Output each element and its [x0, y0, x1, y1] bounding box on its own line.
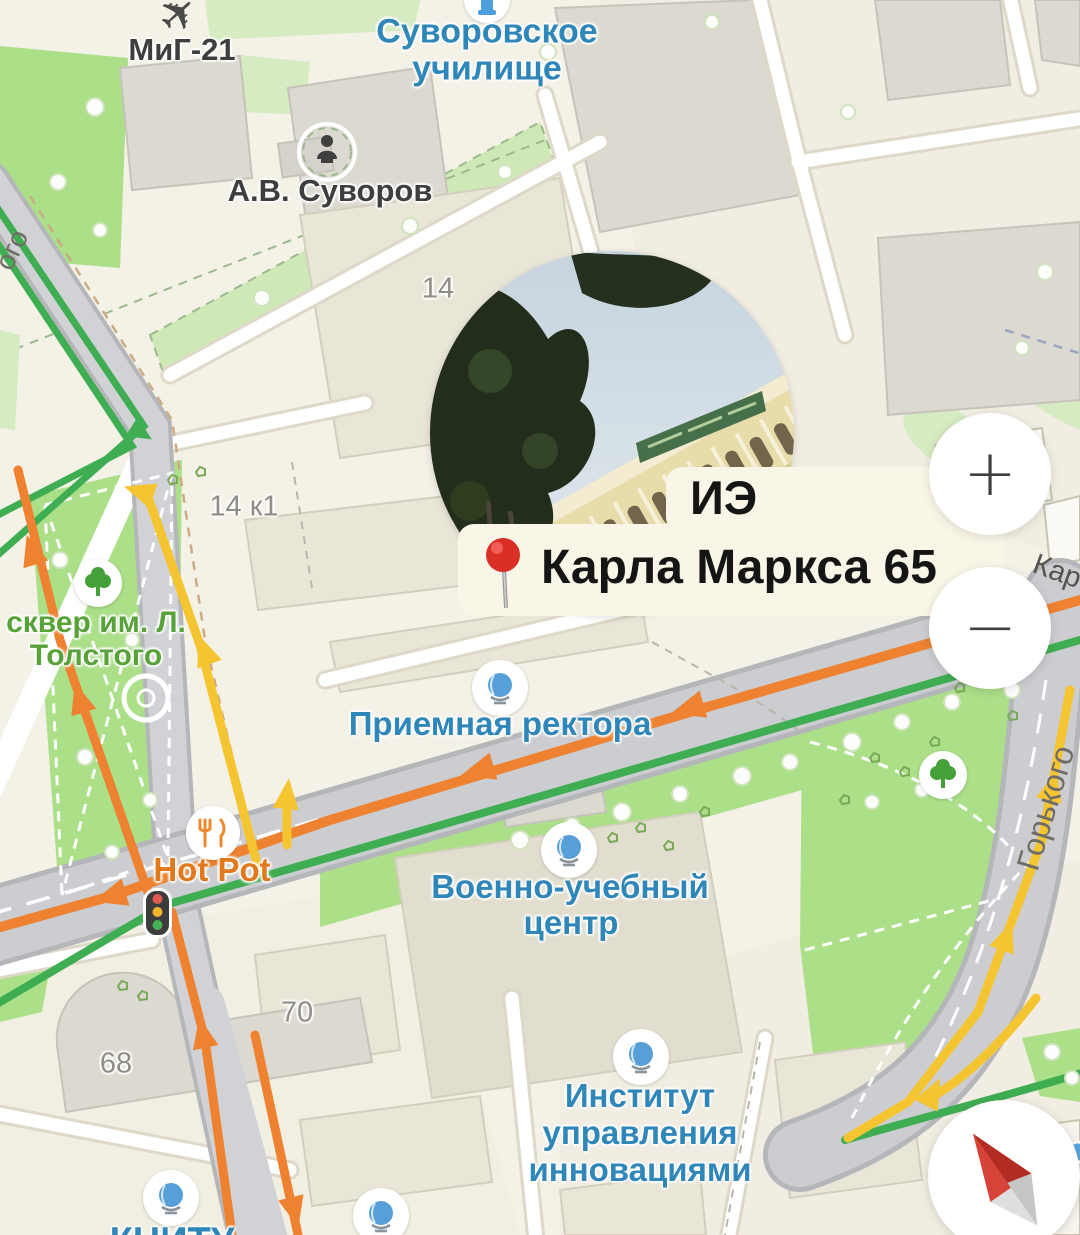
tree-icon[interactable] [919, 751, 967, 799]
minus-icon: − [963, 596, 1017, 660]
place-name[interactable]: ИЭ [690, 470, 757, 525]
plus-icon: + [963, 442, 1017, 506]
zoom-in-button[interactable]: + [929, 413, 1051, 535]
place-address[interactable]: Карла Маркса 65 [541, 540, 937, 595]
building-number-70: 70 [281, 997, 313, 1030]
building-number-68: 68 [100, 1048, 132, 1081]
poi-label-suvorov-school[interactable]: Суворовское [376, 13, 597, 52]
poi-label-institute-2[interactable]: управления [542, 1114, 737, 1152]
poi-label-military-2[interactable]: центр [524, 904, 619, 942]
map-label-suvorov-monument: А.В. Суворов [228, 173, 433, 209]
building-number-14: 14 [422, 273, 454, 306]
map-canvas[interactable]: ✈ МиГ-21 Сувор [0, 0, 1080, 1235]
education-globe-icon[interactable] [353, 1188, 409, 1235]
poi-label-rector[interactable]: Приемная ректора [349, 705, 652, 743]
poi-label-hotpot[interactable]: Hot Pot [153, 851, 270, 889]
compass-needle-icon [928, 1100, 1080, 1235]
monument-icon[interactable] [307, 130, 347, 170]
compass-button[interactable] [928, 1100, 1080, 1235]
poi-label-suvorov-school-2[interactable]: училище [412, 50, 562, 89]
tree-icon[interactable] [74, 559, 122, 607]
traffic-light-icon [143, 888, 172, 938]
poi-label-park-tolstoy[interactable]: сквер им. Л. [6, 606, 186, 640]
poi-label-institute-3[interactable]: инновациями [528, 1151, 751, 1189]
red-pin-icon [482, 534, 526, 617]
map-label-mig21: МиГ-21 [128, 32, 235, 68]
poi-label-park-tolstoy-2[interactable]: Толстого [30, 639, 162, 673]
poi-label-institute[interactable]: Институт [565, 1077, 715, 1115]
poi-label-military[interactable]: Военно-учебный [431, 868, 709, 906]
zoom-out-button[interactable]: − [929, 567, 1051, 689]
building-number-14k1: 14 к1 [209, 491, 278, 524]
poi-label-knitu[interactable]: КНИТУ [110, 1221, 235, 1235]
education-globe-icon[interactable] [143, 1170, 199, 1226]
